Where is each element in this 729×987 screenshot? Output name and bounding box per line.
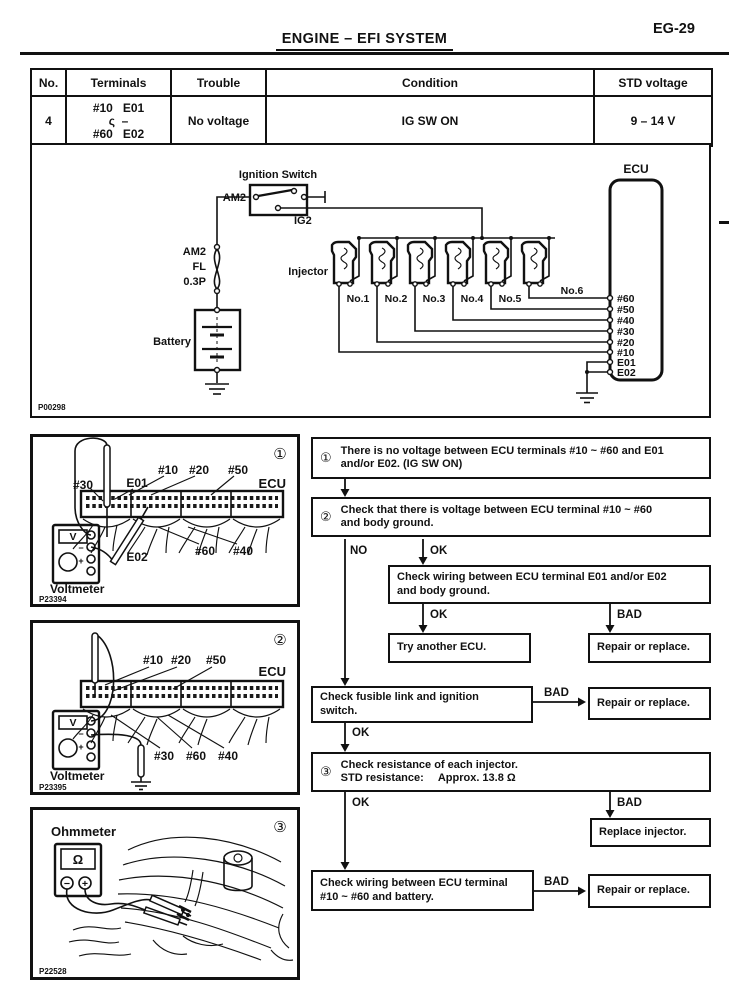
- test-probes: [75, 438, 148, 564]
- cell-no: 4: [31, 96, 66, 146]
- ecu-label: ECU: [623, 162, 648, 176]
- table-row: 4 #10 E01 ς – #60 E02 No voltage IG SW O…: [31, 96, 712, 146]
- meter-display: Ω: [73, 852, 83, 867]
- voltmeter-drawing: V − +: [53, 525, 99, 583]
- std-resistance-label: STD resistance:: [341, 772, 424, 784]
- figure-code: P23395: [39, 783, 67, 792]
- flow-step-1: ① There is no voltage between ECU termin…: [311, 437, 711, 479]
- figure-ohmmeter: ③ Ohmmeter Ω − +: [30, 807, 300, 980]
- battery-symbol: [195, 308, 240, 373]
- label-50: #50: [228, 463, 248, 477]
- terminal-leader-lines: [90, 476, 237, 544]
- branch-label-ok-3: OK: [352, 727, 369, 739]
- cell-trouble: No voltage: [171, 96, 266, 146]
- label-30: #30: [73, 478, 93, 492]
- injector-symbols: [332, 242, 546, 286]
- minus-mark: −: [64, 878, 70, 890]
- figure-1-number: ①: [273, 446, 286, 463]
- fig1-ecu-label: ECU: [259, 476, 286, 491]
- circuit-diagram-box: Ignition Switch AM2 IG2 AM2 FL 0.3P Batt…: [30, 143, 711, 418]
- ignition-switch-label: Ignition Switch: [239, 169, 317, 181]
- label-40: #40: [218, 749, 238, 763]
- col-std-voltage: STD voltage: [594, 69, 712, 96]
- branch-label-bad-1: BAD: [617, 609, 642, 621]
- cell-condition: IG SW ON: [266, 96, 594, 146]
- injector-no5-label: No.5: [499, 293, 522, 305]
- col-terminals: Terminals: [66, 69, 171, 96]
- plus-mark: +: [78, 742, 83, 752]
- plus-mark: +: [78, 556, 83, 566]
- label-50: #50: [206, 653, 226, 667]
- ignition-switch-symbol: [250, 185, 325, 215]
- engine-line-art: [69, 837, 293, 960]
- meter-display: V: [69, 531, 76, 543]
- voltmeter-label: Voltmeter: [50, 769, 105, 783]
- branch-label-ok-1: OK: [430, 545, 447, 557]
- battery-ground-symbol: [205, 384, 229, 394]
- branch-label-bad-3: BAD: [617, 797, 642, 809]
- flow-replace-injector: Replace injector.: [590, 818, 711, 847]
- figure-code: P00298: [38, 403, 66, 412]
- branch-label-no: NO: [350, 545, 367, 557]
- flow-repair-3: Repair or replace.: [588, 874, 711, 908]
- figure-code: P23394: [39, 595, 67, 604]
- voltmeter-label: Voltmeter: [50, 582, 105, 596]
- label-e01: E01: [126, 476, 148, 490]
- cell-terminals: #10 E01 ς – #60 E02: [66, 96, 171, 146]
- label-60: #60: [186, 749, 206, 763]
- flow-repair-1: Repair or replace.: [588, 633, 711, 663]
- ecu-pin-e02: E02: [617, 367, 636, 379]
- label-40: #40: [233, 544, 253, 558]
- flow-check-fusible-link: Check fusible link and ignition switch.: [311, 686, 533, 723]
- ecu-ground-symbol: [576, 393, 598, 403]
- injector-no2-label: No.2: [385, 293, 408, 305]
- injector-no6-label: No.6: [561, 285, 584, 297]
- figure-3-number: ③: [273, 819, 286, 836]
- page-title: ENGINE – EFI SYSTEM: [0, 31, 729, 47]
- branch-label-ok-2: OK: [430, 609, 447, 621]
- fig2-ecu-label: ECU: [259, 664, 286, 679]
- page-edge-mark: [719, 221, 729, 224]
- branch-label-bad-4: BAD: [544, 876, 569, 888]
- flow-repair-2: Repair or replace.: [588, 687, 711, 720]
- body-ground-symbol: [131, 782, 151, 790]
- injector-no1-label: No.1: [347, 293, 370, 305]
- circuit-wires: [217, 197, 610, 393]
- step-3-number: ③: [320, 765, 332, 779]
- fusible-label-1: AM2: [183, 246, 206, 258]
- flow-check-wiring-e01: Check wiring between ECU terminal E01 an…: [388, 565, 711, 604]
- label-20: #20: [189, 463, 209, 477]
- ohmmeter-label: Ohmmeter: [51, 824, 116, 839]
- cell-std-voltage: 9 – 14 V: [594, 96, 712, 146]
- fusible-label-2: FL: [193, 261, 207, 273]
- figure-voltmeter-1: ① ECU: [30, 434, 300, 607]
- fusible-label-3: 0.3P: [183, 276, 206, 288]
- label-10: #10: [158, 463, 178, 477]
- step-2-number: ②: [320, 510, 332, 524]
- meter-display: V: [69, 717, 76, 729]
- branch-label-bad-2: BAD: [544, 687, 569, 699]
- label-60: #60: [195, 544, 215, 558]
- header-rule: [20, 52, 729, 55]
- flow-step-3: ③ Check resistance of each injector. STD…: [311, 752, 711, 792]
- ig-sw-on-emphasis: (IG SW ON): [403, 458, 462, 470]
- injector-no4-label: No.4: [461, 293, 484, 305]
- figure-voltmeter-2: ② ECU: [30, 620, 300, 795]
- label-e02: E02: [126, 550, 148, 564]
- step-1-number: ①: [320, 451, 332, 465]
- plus-mark: +: [82, 878, 88, 890]
- ohmmeter-drawing: Ω − +: [55, 844, 101, 896]
- col-trouble: Trouble: [171, 69, 266, 96]
- trouble-spec-table: No. Terminals Trouble Condition STD volt…: [30, 68, 713, 147]
- flow-try-another-ecu: Try another ECU.: [388, 633, 531, 663]
- injector-label: Injector: [288, 266, 328, 278]
- label-20: #20: [171, 653, 191, 667]
- col-no: No.: [31, 69, 66, 96]
- col-condition: Condition: [266, 69, 594, 96]
- table-header-row: No. Terminals Trouble Condition STD volt…: [31, 69, 712, 96]
- manual-page: ENGINE – EFI SYSTEM EG-29 No. Terminals …: [0, 0, 729, 987]
- figure-code: P22528: [39, 967, 67, 976]
- label-30: #30: [154, 749, 174, 763]
- am2-terminal-label: AM2: [223, 192, 246, 204]
- page-number: EG-29: [653, 21, 695, 37]
- minus-mark: −: [78, 543, 83, 553]
- minus-mark: −: [78, 729, 83, 739]
- battery-label: Battery: [153, 336, 192, 348]
- figure-2-number: ②: [273, 632, 286, 649]
- label-10: #10: [143, 653, 163, 667]
- branch-label-ok-4: OK: [352, 797, 369, 809]
- flow-check-wiring-battery: Check wiring between ECU terminal #10 ~ …: [311, 870, 534, 911]
- circuit-diagram: Ignition Switch AM2 IG2 AM2 FL 0.3P Batt…: [32, 145, 709, 416]
- injector-no3-label: No.3: [423, 293, 446, 305]
- flow-step-2: ② Check that there is voltage between EC…: [311, 497, 711, 537]
- std-resistance-value: Approx. 13.8 Ω: [438, 772, 516, 784]
- ig2-terminal-label: IG2: [294, 215, 312, 227]
- fusible-link-symbol: [214, 245, 219, 294]
- ecu-symbol: [608, 180, 663, 380]
